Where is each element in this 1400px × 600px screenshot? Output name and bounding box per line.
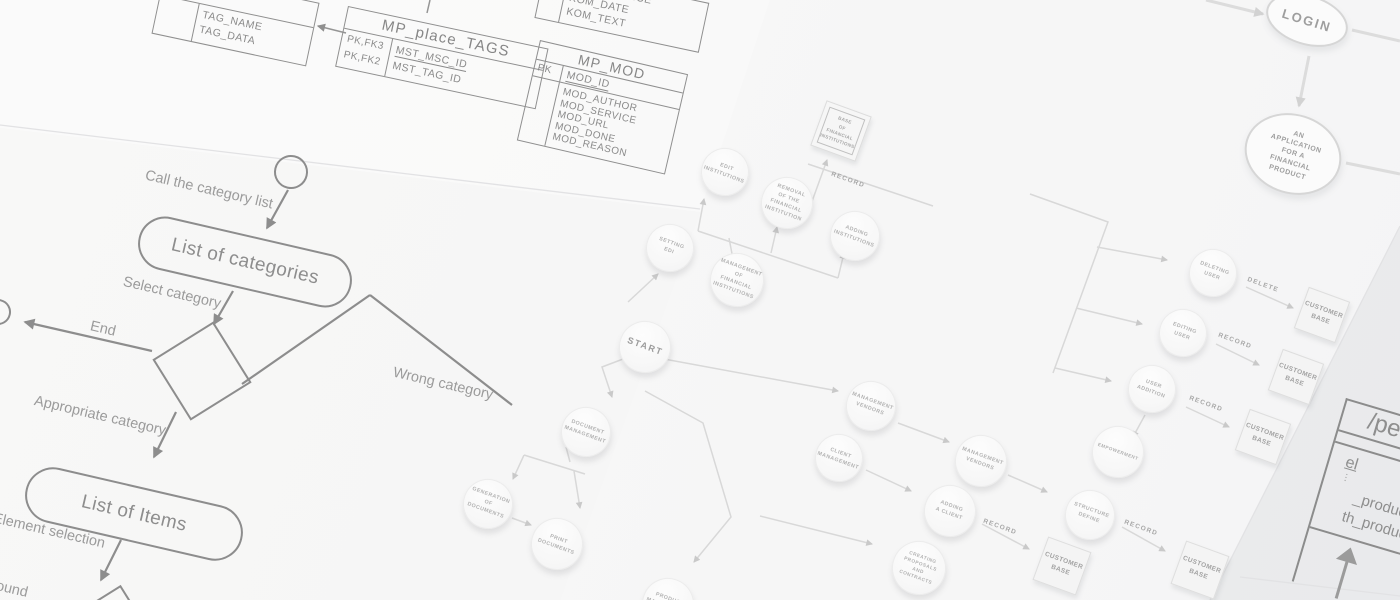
diagram-collage-background: TAG_NAME TAG_DATA MP_place_TAGS PK,FK3 P… bbox=[0, 0, 1400, 600]
up-arrow-icon bbox=[1336, 544, 1361, 565]
edi-node-base-of-financial-institutions-label: BASE OF FINANCIAL INSTITUTIONS bbox=[817, 107, 866, 156]
up-arrow-shaft bbox=[1335, 560, 1349, 599]
